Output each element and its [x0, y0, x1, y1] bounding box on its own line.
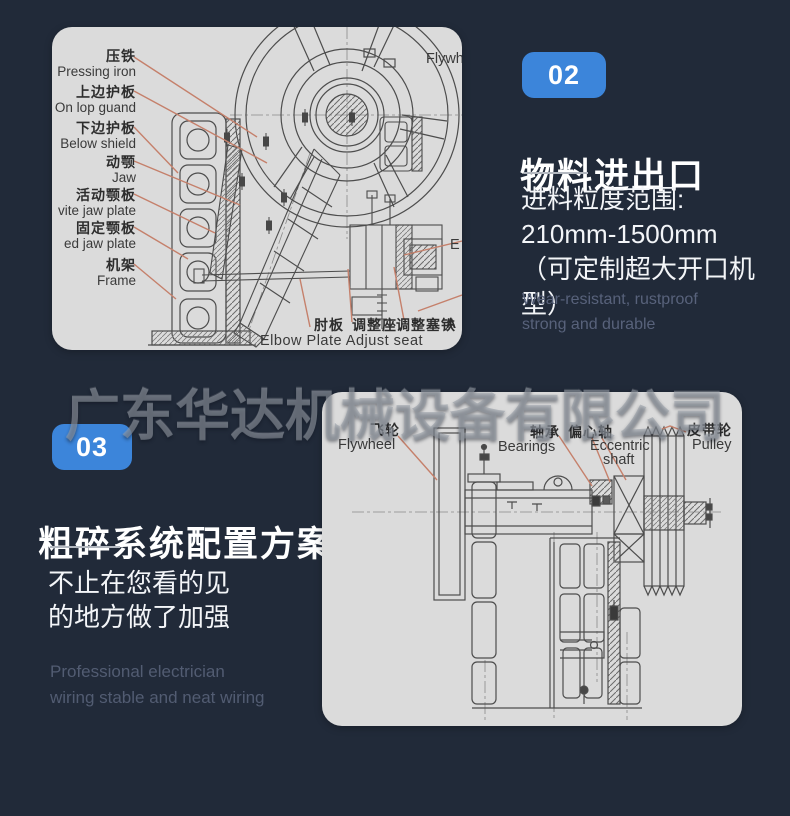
- eccentric-shaft-label-en2: shaft: [603, 452, 634, 468]
- flywheel-section: [434, 428, 465, 600]
- flywheel-label-en: Flywheel: [338, 437, 395, 453]
- part-label-pressing-iron: 压铁Pressing iron: [52, 49, 136, 78]
- part-label-upper-shield: 上边护板On lop guand: [52, 85, 136, 114]
- partial-right-label: E: [450, 237, 460, 253]
- part-label-lower-shield: 下边护板Below shield: [52, 121, 136, 150]
- part-label-frame: 机架Frame: [52, 258, 136, 287]
- section-02-badge: 02: [522, 52, 606, 98]
- section-03-title: 粗碎系统配置方案: [38, 516, 334, 567]
- part-label-jaw: 动颚Jaw: [52, 155, 136, 184]
- elbow-plate-label-zh: 肘板: [314, 315, 344, 335]
- left-support-column: [468, 445, 500, 705]
- partial-bottom-label: A: [446, 315, 457, 331]
- lower-frame-section: [472, 538, 642, 708]
- part-label-movable-jaw-plate: 活动颚板vite jaw plate: [52, 188, 136, 217]
- reinforcement-text: 不止在您看的见 的地方做了加强: [48, 566, 230, 634]
- section-03-subtext: Professional electrician wiring stable a…: [50, 659, 265, 711]
- adjust-seat-label-zh: 调整座: [352, 315, 397, 335]
- page-background: 压铁Pressing iron 上边护板On lop guand 下边护板Bel…: [0, 0, 790, 816]
- part-label-fixed-jaw-plate: 固定颚板ed jaw plate: [52, 221, 136, 250]
- section-02-subtext: Wear-resistant, rustproof strong and dur…: [522, 287, 698, 337]
- shaft-section-diagram-panel: 飞轮 Flywheel 轴承 Bearings 偏心轴 Eccentric sh…: [322, 392, 742, 726]
- section-02-divider: [524, 172, 588, 174]
- section-03-divider: [50, 546, 120, 548]
- section-03-badge: 03: [52, 424, 132, 470]
- pulley-label-en: Pulley: [692, 437, 732, 453]
- elbow-adjust-label-en: Elbow Plate Adjust seat: [260, 333, 423, 349]
- flywheel-label: Flywheel: [426, 51, 462, 67]
- jaw-crusher-diagram-panel: 压铁Pressing iron 上边护板On lop guand 下边护板Bel…: [52, 27, 462, 350]
- bearings-label-en: Bearings: [498, 439, 555, 455]
